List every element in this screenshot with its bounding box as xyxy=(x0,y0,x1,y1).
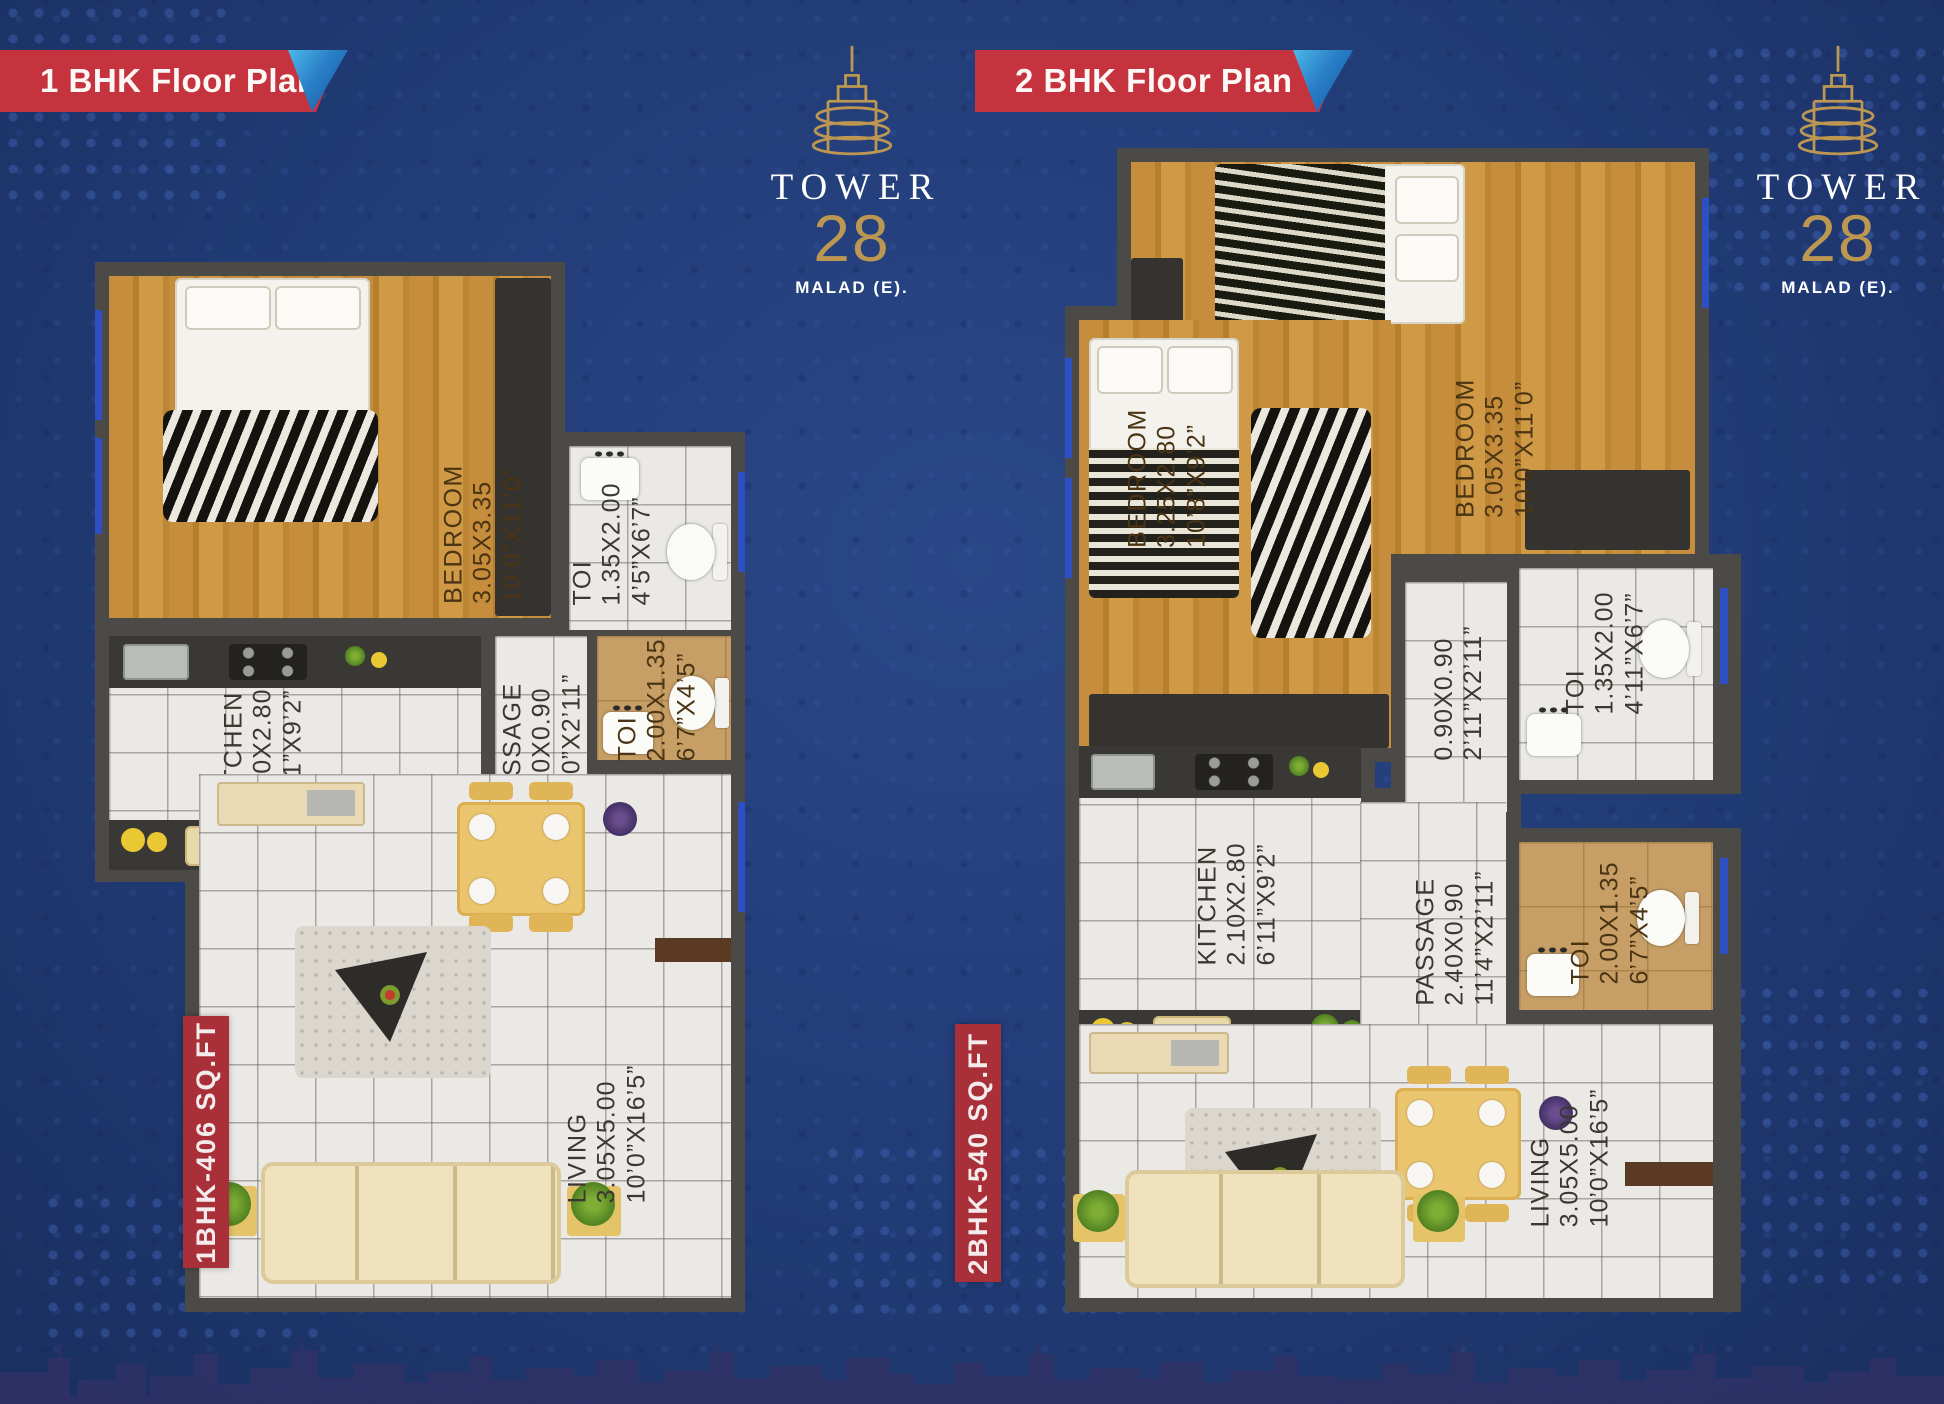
console-table xyxy=(1089,1032,1229,1074)
jar xyxy=(121,828,145,852)
logo-location: MALAD (E). xyxy=(752,278,952,298)
toilet-tank xyxy=(1685,892,1699,944)
zebra-rug xyxy=(163,410,378,522)
window-accent xyxy=(95,438,102,534)
room-label-toilet2: TOI 2.00X1.35 6’7”X4’5” xyxy=(1568,862,1653,985)
chair xyxy=(1407,1066,1451,1084)
wardrobe xyxy=(1089,694,1389,748)
room-label-bedroom2: BEDROOM 3.05X3.35 10’0”X11’0” xyxy=(1453,378,1538,518)
plant xyxy=(603,802,637,836)
room-label-living: LIVING 3.05X5.00 10’0”X16’5” xyxy=(565,1065,650,1204)
room-label-toilet: TOI 2.00X1.35 6’7”X4’5” xyxy=(615,639,700,762)
sofa xyxy=(261,1162,561,1284)
cooktop xyxy=(1195,754,1273,790)
city-skyline xyxy=(0,1340,1944,1404)
room-label-bedroom1: BEDROOM 3.25X2.80 10’8”X9’2” xyxy=(1125,408,1210,548)
tower28-logo: TOWER 28 MALAD (E). xyxy=(752,44,952,298)
room-label-passage: PASSAGE 2.40X0.90 11’4”X2’11” xyxy=(1413,870,1498,1005)
chair xyxy=(1465,1066,1509,1084)
tower-building-icon xyxy=(1778,44,1898,164)
window-accent xyxy=(1702,198,1709,308)
door-lintel xyxy=(655,938,731,962)
jar xyxy=(345,646,365,666)
patterned-blanket xyxy=(1215,164,1385,324)
jar xyxy=(371,652,387,668)
chair xyxy=(1465,1204,1509,1222)
zebra-rug xyxy=(1251,408,1371,638)
tower28-logo: TOWER 28 MALAD (E). xyxy=(1738,44,1938,298)
bathroom-sink xyxy=(1527,714,1581,756)
room-label-toilet: TOI 1.35X2.00 4’5”X6’7” xyxy=(570,483,655,606)
plant xyxy=(1417,1190,1459,1232)
plate xyxy=(1479,1162,1505,1188)
jar xyxy=(1313,762,1329,778)
window-accent xyxy=(1065,478,1072,578)
console-table xyxy=(217,782,365,826)
toilet-tank xyxy=(1687,622,1701,676)
chair xyxy=(529,914,573,932)
pillow xyxy=(1097,346,1163,394)
room-label-kitchen: KITCHEN 2.10X2.80 6’11”X9’2” xyxy=(1195,843,1280,966)
sofa xyxy=(1125,1170,1405,1288)
pillow xyxy=(1395,234,1459,282)
window-accent xyxy=(1720,588,1728,684)
toilet-tank xyxy=(713,524,727,580)
plate xyxy=(1479,1100,1505,1126)
window-accent xyxy=(738,802,745,912)
cooktop xyxy=(229,644,307,680)
brochure-page: 1 BHK Floor Plan 2 BHK Floor Plan TOWER … xyxy=(0,0,1944,1404)
window-accent xyxy=(1065,358,1072,458)
jar xyxy=(147,832,167,852)
area-tag-2bhk: 2BHK-540 SQ.FT xyxy=(955,1024,1001,1282)
banner-2bhk: 2 BHK Floor Plan xyxy=(975,50,1345,112)
toilet-tank xyxy=(715,678,729,728)
banner-2bhk-label: 2 BHK Floor Plan xyxy=(1015,62,1293,100)
plate xyxy=(543,814,569,840)
chair xyxy=(529,782,573,800)
window-accent xyxy=(1720,858,1728,954)
window-accent xyxy=(738,472,745,572)
door-lintel xyxy=(1625,1162,1713,1186)
plant xyxy=(1077,1190,1119,1232)
chair xyxy=(469,782,513,800)
plate xyxy=(1407,1162,1433,1188)
plate xyxy=(543,878,569,904)
window-accent xyxy=(95,310,102,420)
plate xyxy=(1407,1100,1433,1126)
banner-1bhk: 1 BHK Floor Plan xyxy=(0,50,340,112)
kitchen-sink xyxy=(123,644,189,680)
pillow xyxy=(185,286,271,330)
flower xyxy=(379,984,401,1006)
jar xyxy=(1289,756,1309,776)
pillow xyxy=(1395,176,1459,224)
room-label-toilet1: TOI 1.35X2.00 4’11”X6’7” xyxy=(1563,592,1648,715)
logo-number: 28 xyxy=(752,207,952,270)
logo-location: MALAD (E). xyxy=(1738,278,1938,298)
kitchen-sink xyxy=(1091,754,1155,790)
plate xyxy=(469,878,495,904)
pillow xyxy=(1167,346,1233,394)
dresser xyxy=(1525,470,1690,550)
room-label-living: LIVING 3.05X5.00 10’0”X16’5” xyxy=(1528,1089,1613,1228)
pillow xyxy=(275,286,361,330)
plate xyxy=(469,814,495,840)
banner-1bhk-label: 1 BHK Floor Plan xyxy=(40,62,318,100)
toilet xyxy=(667,524,715,580)
area-tag-1bhk: 1BHK-406 SQ.FT xyxy=(183,1016,229,1268)
logo-number: 28 xyxy=(1738,207,1938,270)
room-label-bedroom: BEDROOM 3.05X3.35 10’0”X11’0” xyxy=(441,464,526,604)
room-label-corridor: 0.90X0.90 2’11”X2’11” xyxy=(1428,625,1487,760)
floor-plan-2bhk: BEDROOM 3.05X3.35 10’0”X11’0” TOI 1.35X2… xyxy=(1065,148,1741,1312)
tower-building-icon xyxy=(792,44,912,164)
